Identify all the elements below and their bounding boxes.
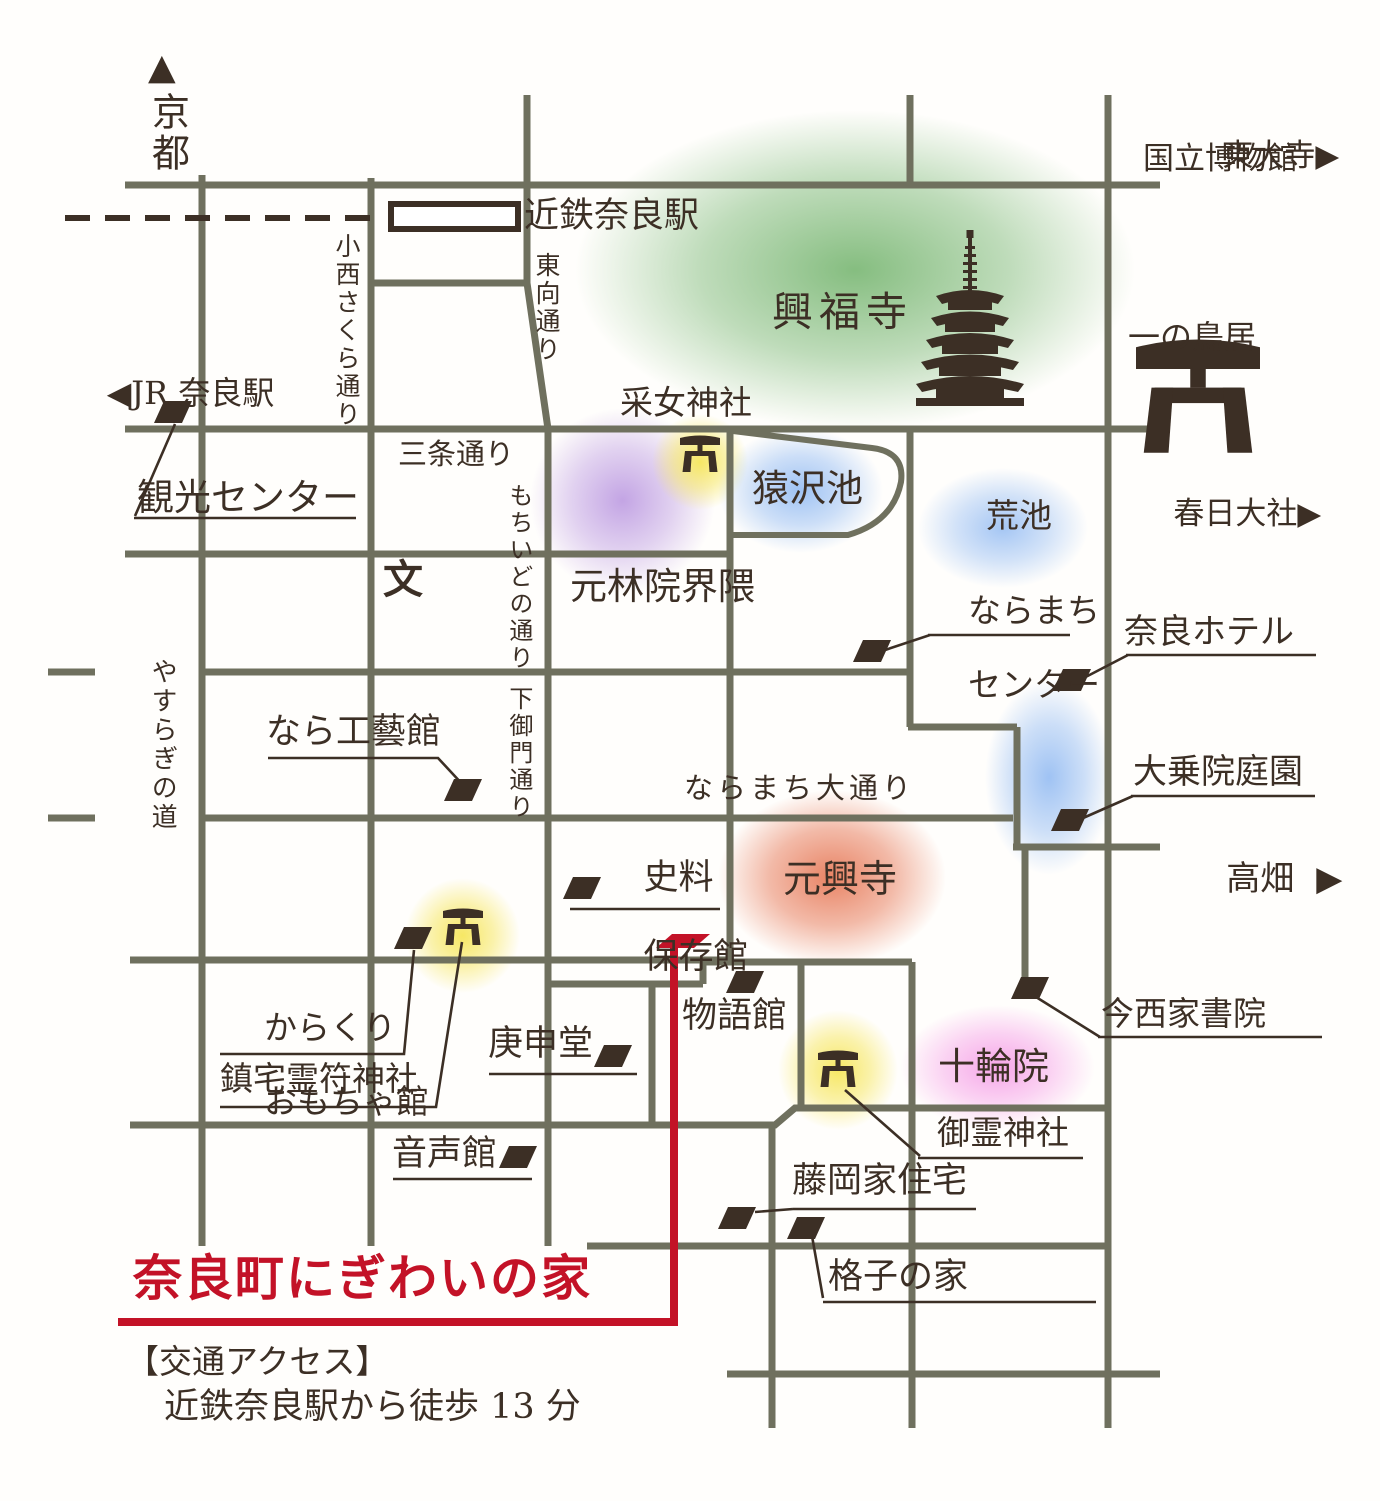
label-kintetsu-station: 近鉄奈良駅	[524, 197, 699, 236]
building-marker-daijoin	[1051, 809, 1089, 831]
label-shimomikado-street: 下御門通り	[505, 686, 532, 821]
label-goryo-shrine: 御霊神社	[937, 1115, 1069, 1152]
building-marker-onjokan	[499, 1146, 537, 1168]
label-onjokan: 音声館	[392, 1135, 497, 1174]
access-heading: 【交通アクセス】	[126, 1344, 388, 1381]
access-detail: 近鉄奈良駅から徒歩 13 分	[164, 1388, 581, 1427]
label-monogatarikan: 物語館	[682, 997, 787, 1036]
label-daijoin-garden: 大乗院庭園	[1133, 753, 1303, 791]
label-ganrinin: 元林院界隈	[570, 566, 755, 607]
label-konishi-sakura-street: 小西さくら通り	[332, 233, 360, 429]
label-nara-hotel: 奈良ホテル	[1124, 613, 1294, 651]
torii-icon-chintaku	[443, 909, 483, 946]
label-mochiidono-street: もちいどの通り	[505, 483, 532, 672]
street	[1017, 727, 1025, 982]
building-marker-fujioka-1	[718, 1207, 756, 1229]
building-marker-kogeikan	[444, 779, 482, 801]
label-sarusawa-pond: 猿沢池	[752, 468, 863, 509]
building-marker-fujioka-2	[787, 1217, 825, 1239]
right-arrow-icon: ▶	[1297, 496, 1321, 532]
label-kyoto: 京都	[146, 92, 189, 174]
pagoda-icon	[916, 230, 1024, 406]
label-nara-kogeikan: なら工藝館	[266, 713, 441, 752]
label-chintaku-shrine: 鎮宅霊符神社	[220, 1061, 418, 1098]
left-arrow-icon: ◀	[107, 374, 132, 412]
label-jr-station: ◀JR 奈良駅	[66, 340, 274, 447]
label-fujioka-house: 藤岡家住宅	[792, 1162, 967, 1201]
torii-icon-goryo	[818, 1051, 858, 1088]
school-icon: 文	[383, 558, 423, 603]
label-jurinin: 十輪院	[938, 1046, 1049, 1087]
right-arrow-icon: ▶	[1315, 138, 1339, 174]
label-kanko-center: 観光センター	[137, 477, 359, 518]
label-kasuga-taisha: 春日大社▶	[1134, 462, 1321, 566]
building-marker-shiryo	[563, 877, 601, 899]
nara-machi-access-map: ▲ 京都 東大寺▶ 国立博物館 ◀JR 奈良駅 春日大社▶ 高畑▶ 近鉄奈良駅 …	[0, 0, 1380, 1501]
kintetsu-station-symbol	[391, 204, 518, 229]
label-imanishi-shoin: 今西家書院	[1101, 996, 1266, 1033]
label-higashimuki-street: 東向通り	[532, 252, 560, 364]
right-arrow-icon: ▶	[1294, 859, 1342, 899]
label-ichino-torii: 一の鳥居	[1128, 320, 1256, 356]
torii-icon-ichino-torii	[1136, 340, 1260, 453]
label-gangoji: 元興寺	[783, 858, 897, 901]
label-naramachi-odori: ならまち大通り	[684, 772, 915, 804]
destination-title: 奈良町にぎわいの家	[133, 1252, 592, 1307]
up-arrow-icon: ▲	[148, 48, 176, 88]
label-uneme-shrine: 采女神社	[620, 385, 752, 422]
building-marker-naramachi-center	[853, 640, 891, 662]
label-koshindo: 庚申堂	[488, 1025, 593, 1064]
building-marker-karakuri	[394, 927, 432, 949]
label-national-museum: 国立博物館	[1143, 142, 1298, 177]
label-yasuragi-street: やすらぎの道	[147, 658, 176, 832]
label-kofukuji: 興福寺	[772, 290, 913, 336]
label-ara-pond: 荒池	[986, 498, 1052, 535]
label-takabatake: 高畑▶	[1183, 822, 1342, 936]
building-marker-imanishi	[1011, 977, 1049, 999]
label-naramachi-center: ならまち センター	[926, 556, 1100, 741]
label-koshi-house: 格子の家	[828, 1258, 968, 1297]
torii-icon-uneme	[680, 436, 720, 473]
label-sanjo-street: 三条通り	[398, 438, 514, 470]
label-shiryo-hozonkan: 史料 保存館	[599, 820, 749, 1016]
building-marker-koshindo	[594, 1045, 632, 1067]
